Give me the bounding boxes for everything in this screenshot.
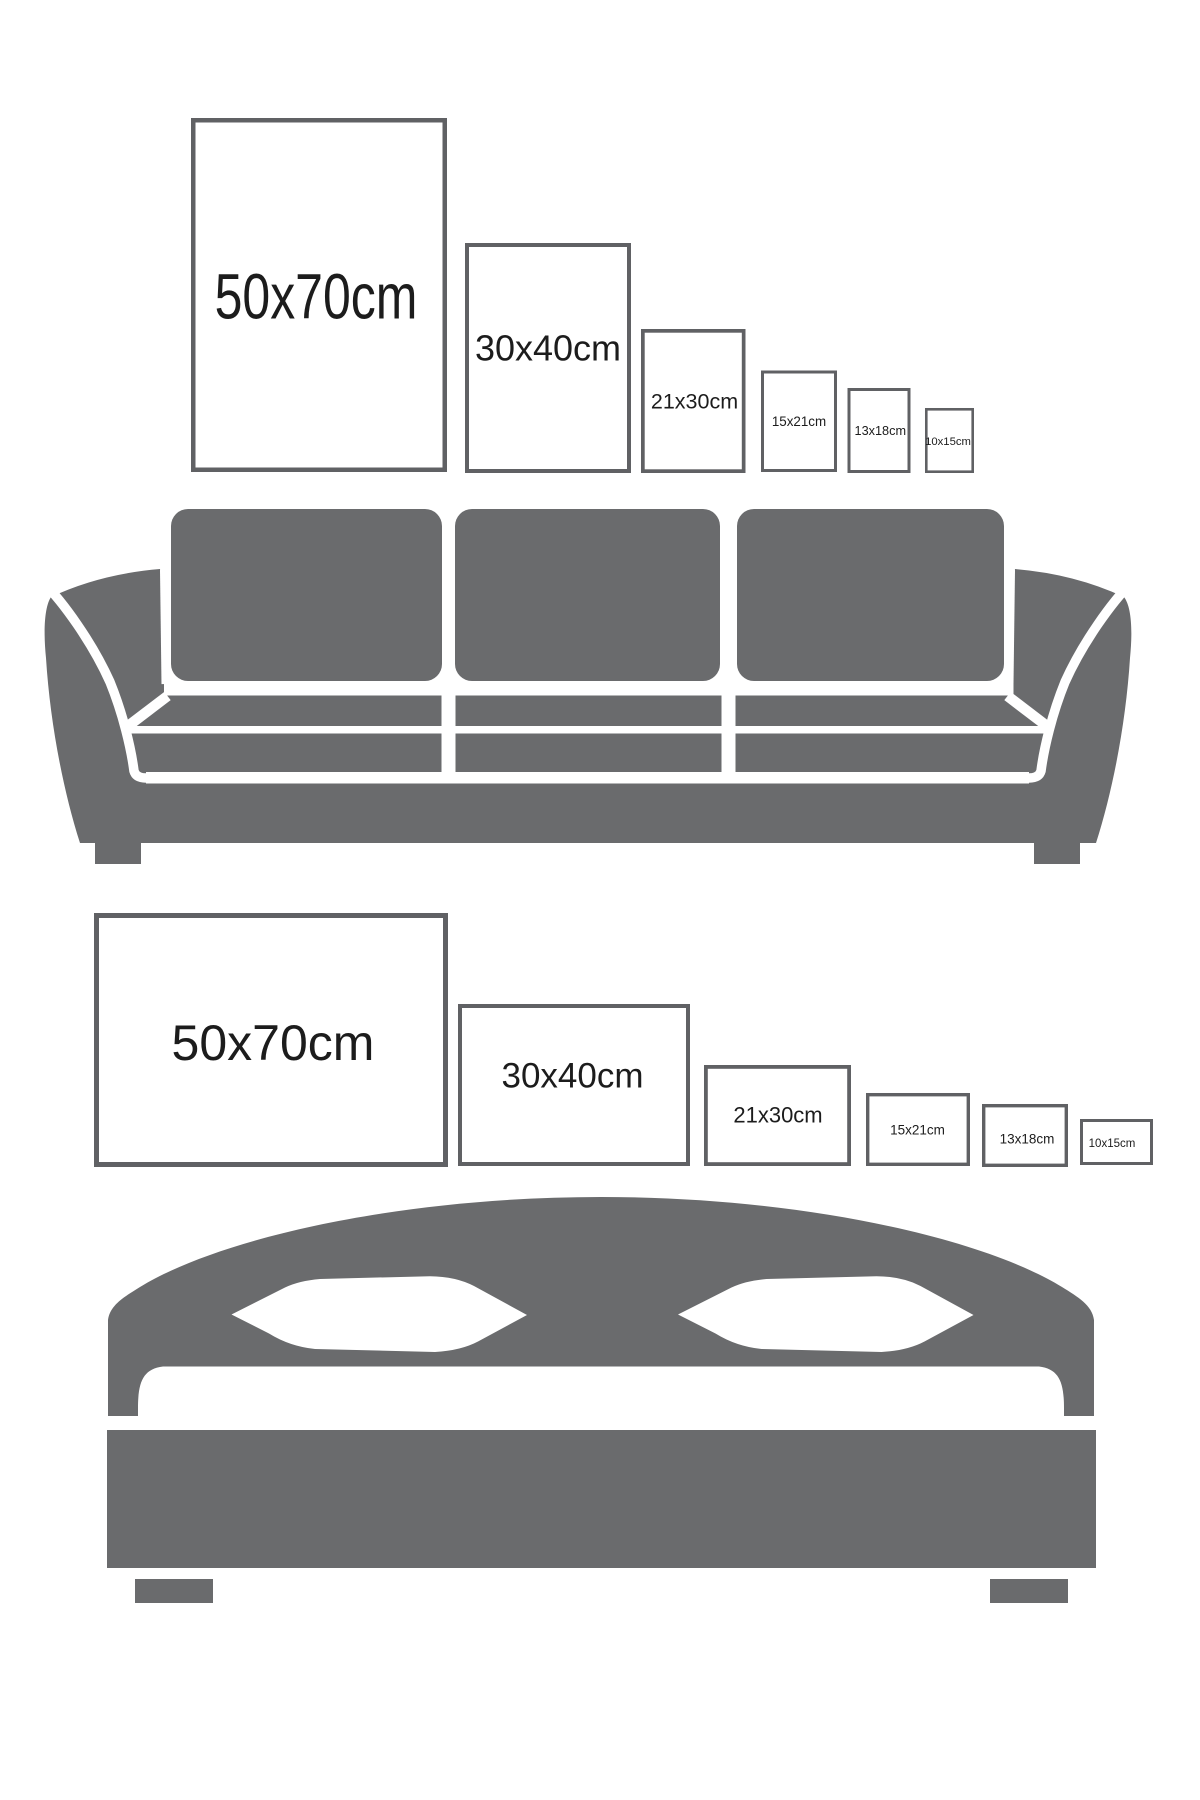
svg-text:10x15cm: 10x15cm [1089, 1138, 1136, 1150]
svg-text:21x30cm: 21x30cm [733, 1103, 822, 1128]
svg-text:13x18cm: 13x18cm [1000, 1131, 1055, 1146]
svg-text:15x21cm: 15x21cm [890, 1123, 945, 1138]
svg-text:50x70cm: 50x70cm [215, 262, 418, 333]
svg-text:21x30cm: 21x30cm [651, 390, 738, 414]
svg-text:50x70cm: 50x70cm [172, 1015, 375, 1071]
svg-text:30x40cm: 30x40cm [475, 328, 621, 369]
svg-text:10x15cm: 10x15cm [925, 436, 971, 448]
svg-text:13x18cm: 13x18cm [855, 424, 906, 438]
svg-text:30x40cm: 30x40cm [501, 1057, 643, 1096]
svg-text:15x21cm: 15x21cm [772, 414, 826, 429]
